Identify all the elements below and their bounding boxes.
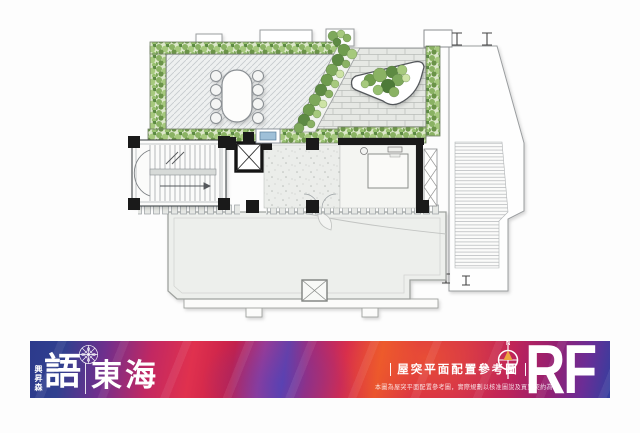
equipment-tank: [368, 154, 408, 188]
developer-name: 興昇森: [34, 365, 43, 392]
stair-handrail: [150, 169, 216, 175]
logo-secondary: 東海: [91, 358, 159, 394]
title-bar-left: [390, 363, 392, 376]
shaft-box: [302, 280, 327, 301]
hedge-top: [150, 42, 340, 54]
machine-area: [264, 145, 437, 208]
side-tower: [449, 46, 524, 291]
roof-slab: [168, 212, 446, 317]
terrazzo-deck: [264, 145, 340, 208]
hedge-over-wall: [338, 127, 426, 138]
wall-top: [338, 138, 424, 145]
compass-needle: [504, 351, 513, 361]
compass-icon: N: [492, 337, 524, 381]
compass-north-label: N: [505, 340, 510, 347]
logo-divider: [85, 363, 86, 394]
floor-plan-drawing: [0, 0, 640, 332]
elevator-shaft: [236, 143, 262, 171]
roof-parapet-box: [424, 30, 452, 47]
stairwell: [132, 140, 226, 206]
floor-plan-area: [0, 0, 640, 332]
hedge-left: [150, 46, 166, 138]
hedge-right: [426, 46, 440, 136]
floor-label: RF: [525, 341, 595, 398]
oval-table: [222, 70, 252, 122]
disclaimer-text: 本圖為屋突平面配置參考圖，實際規劃以核准圖說及買賣契約為準: [375, 381, 537, 391]
skylight-box: [256, 129, 280, 143]
page: 興昇森 語 東海 屋突平面配置參考圖 本圖為屋突平面配置參考圖，實際規劃以核准圖…: [0, 0, 640, 433]
cat-ladder: [424, 149, 437, 206]
wall-right: [416, 145, 423, 207]
logo-primary: 語: [44, 353, 81, 393]
brand-banner: 興昇森 語 東海 屋突平面配置參考圖 本圖為屋突平面配置參考圖，實際規劃以核准圖…: [30, 341, 610, 398]
